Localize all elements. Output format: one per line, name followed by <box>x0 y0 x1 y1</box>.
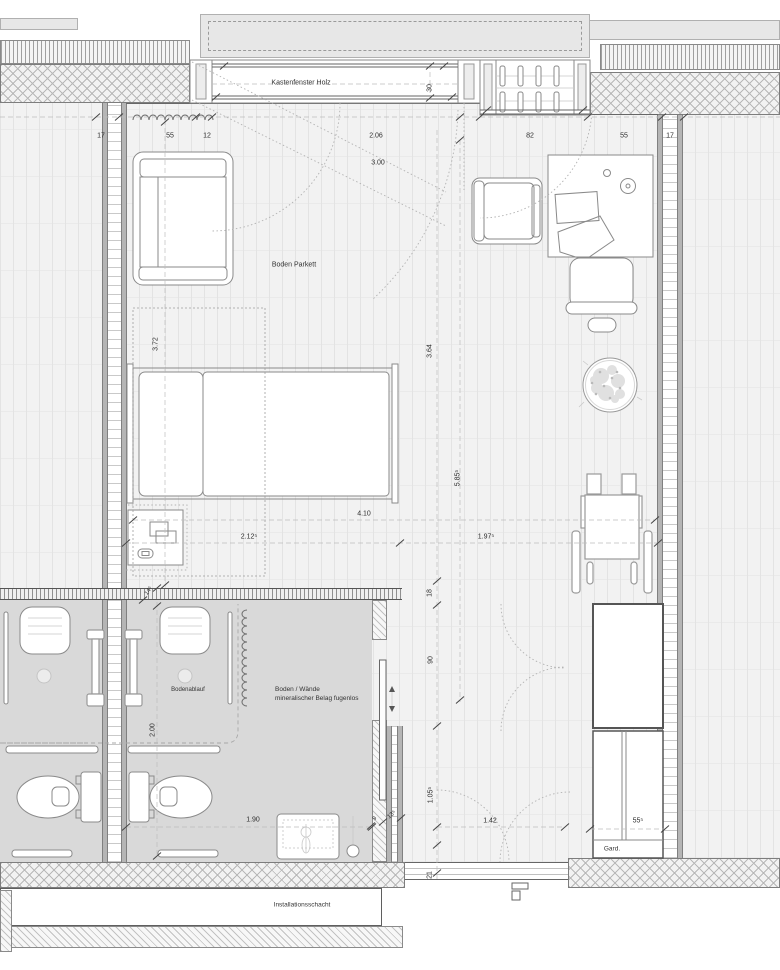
neighbor-room-floor-left <box>0 103 103 600</box>
floor-material-label: Boden Parkett <box>272 262 316 269</box>
dimension-label: 3.72 <box>153 337 160 351</box>
dimension-label: 18 <box>427 589 434 597</box>
bathroom-east-wall-upper <box>372 600 387 640</box>
exterior-wall-layer-left <box>0 40 190 64</box>
dormer-dashed-outline <box>208 21 582 51</box>
sliding-door-pocket-wall <box>387 726 402 862</box>
south-wall-bathroom <box>0 862 405 888</box>
roof-cap-left <box>0 18 78 30</box>
dimension-label: 2.00 <box>150 723 157 737</box>
wardrobe-label: Gard. <box>604 846 620 853</box>
dimension-label: 3.00 <box>371 160 385 167</box>
dimension-label: 17 <box>666 133 674 140</box>
roof-cap-right <box>588 20 780 40</box>
dimension-label: 55 <box>620 133 628 140</box>
neighbor-room-floor-right <box>682 115 780 858</box>
dimension-label: 3.64 <box>427 344 434 358</box>
dimension-label: 55 <box>166 133 174 140</box>
dimension-label: 2.06 <box>369 133 383 140</box>
dimension-label: 90 <box>428 656 435 664</box>
box-window <box>190 60 480 103</box>
dimension-label: 17 <box>97 133 105 140</box>
dimension-label: 21 <box>427 871 434 879</box>
floor-plan: Kastenfenster Holz Boden Parkett Bodenab… <box>0 0 780 970</box>
bathroom-finish-label: Boden / Wände mineralischer Belag fugenl… <box>275 685 358 703</box>
party-wall-left <box>103 103 126 862</box>
exterior-wall-left <box>0 64 190 103</box>
shaft-outer-wall <box>0 926 403 948</box>
installation-shaft-label: Installationsschacht <box>274 902 331 909</box>
dormer-above-window <box>200 14 590 58</box>
party-wall-right <box>658 115 682 858</box>
bathroom-finish-line1: Boden / Wände <box>275 685 358 694</box>
dimension-label: 1.42 <box>483 818 497 825</box>
bathroom-finish-line2: mineralischer Belag fugenlos <box>275 694 358 703</box>
dimension-label: 55⁵ <box>633 818 644 825</box>
dimension-label: 1.97⁵ <box>478 534 495 541</box>
south-wall-right <box>568 858 780 888</box>
exterior-wall-layer-right <box>600 44 780 70</box>
door-closer-bracket <box>512 883 528 900</box>
shaft-wall-left-block <box>0 890 12 952</box>
dimension-label: 5.85⁵ <box>455 470 462 487</box>
dimension-label: 1.90 <box>246 817 260 824</box>
bathroom-east-wall-lower <box>372 720 387 862</box>
bathroom-north-wall <box>0 588 402 600</box>
dimension-label: 1.05⁵ <box>428 787 435 804</box>
dimension-label: 2.12⁵ <box>241 534 258 541</box>
floor-drain-label: Bodenablauf <box>171 687 205 693</box>
dimension-label: 82 <box>526 133 534 140</box>
exterior-wall-right <box>590 72 780 115</box>
dimension-label: 4.10 <box>357 511 371 518</box>
window-label: Kastenfenster Holz <box>271 80 330 87</box>
dimension-label: 30 <box>427 84 434 92</box>
dimension-label: 12 <box>203 133 211 140</box>
neighbor-bathroom-floor <box>0 600 103 862</box>
